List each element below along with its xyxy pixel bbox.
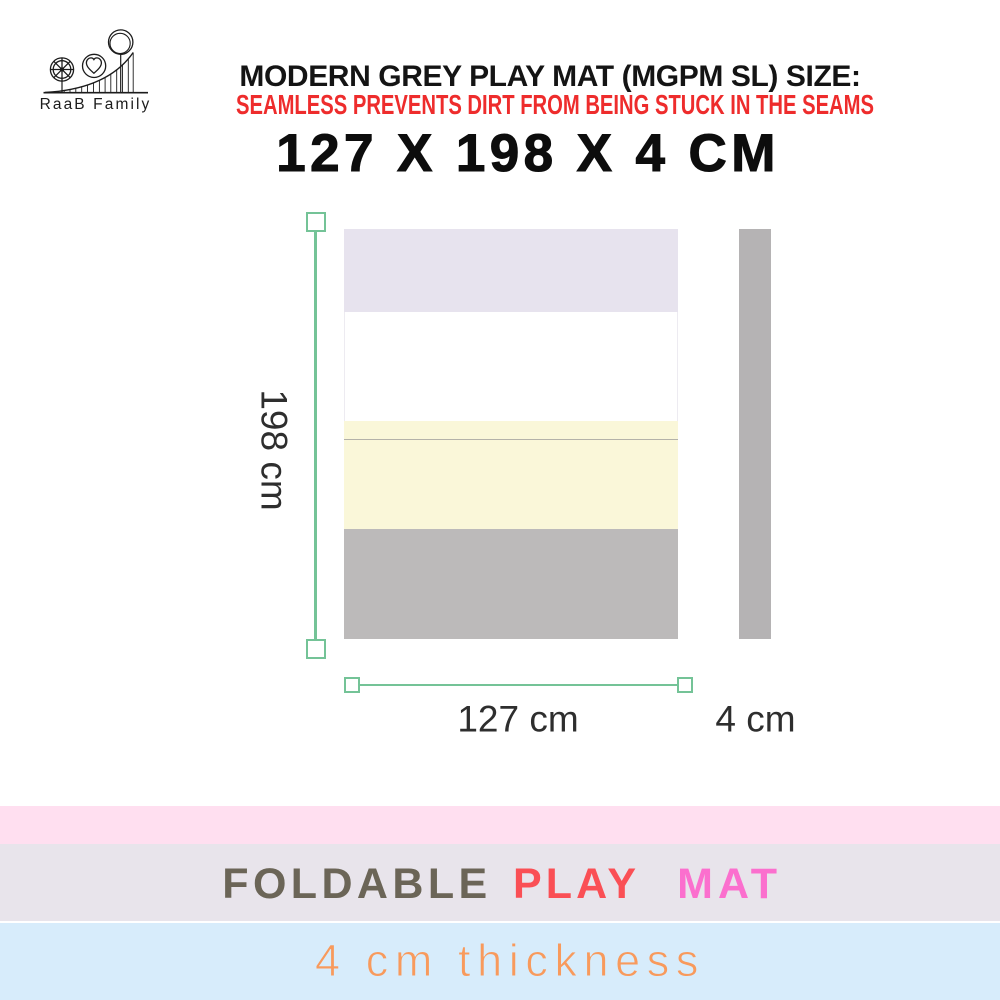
svg-text:RaaB Family: RaaB Family <box>40 96 152 113</box>
